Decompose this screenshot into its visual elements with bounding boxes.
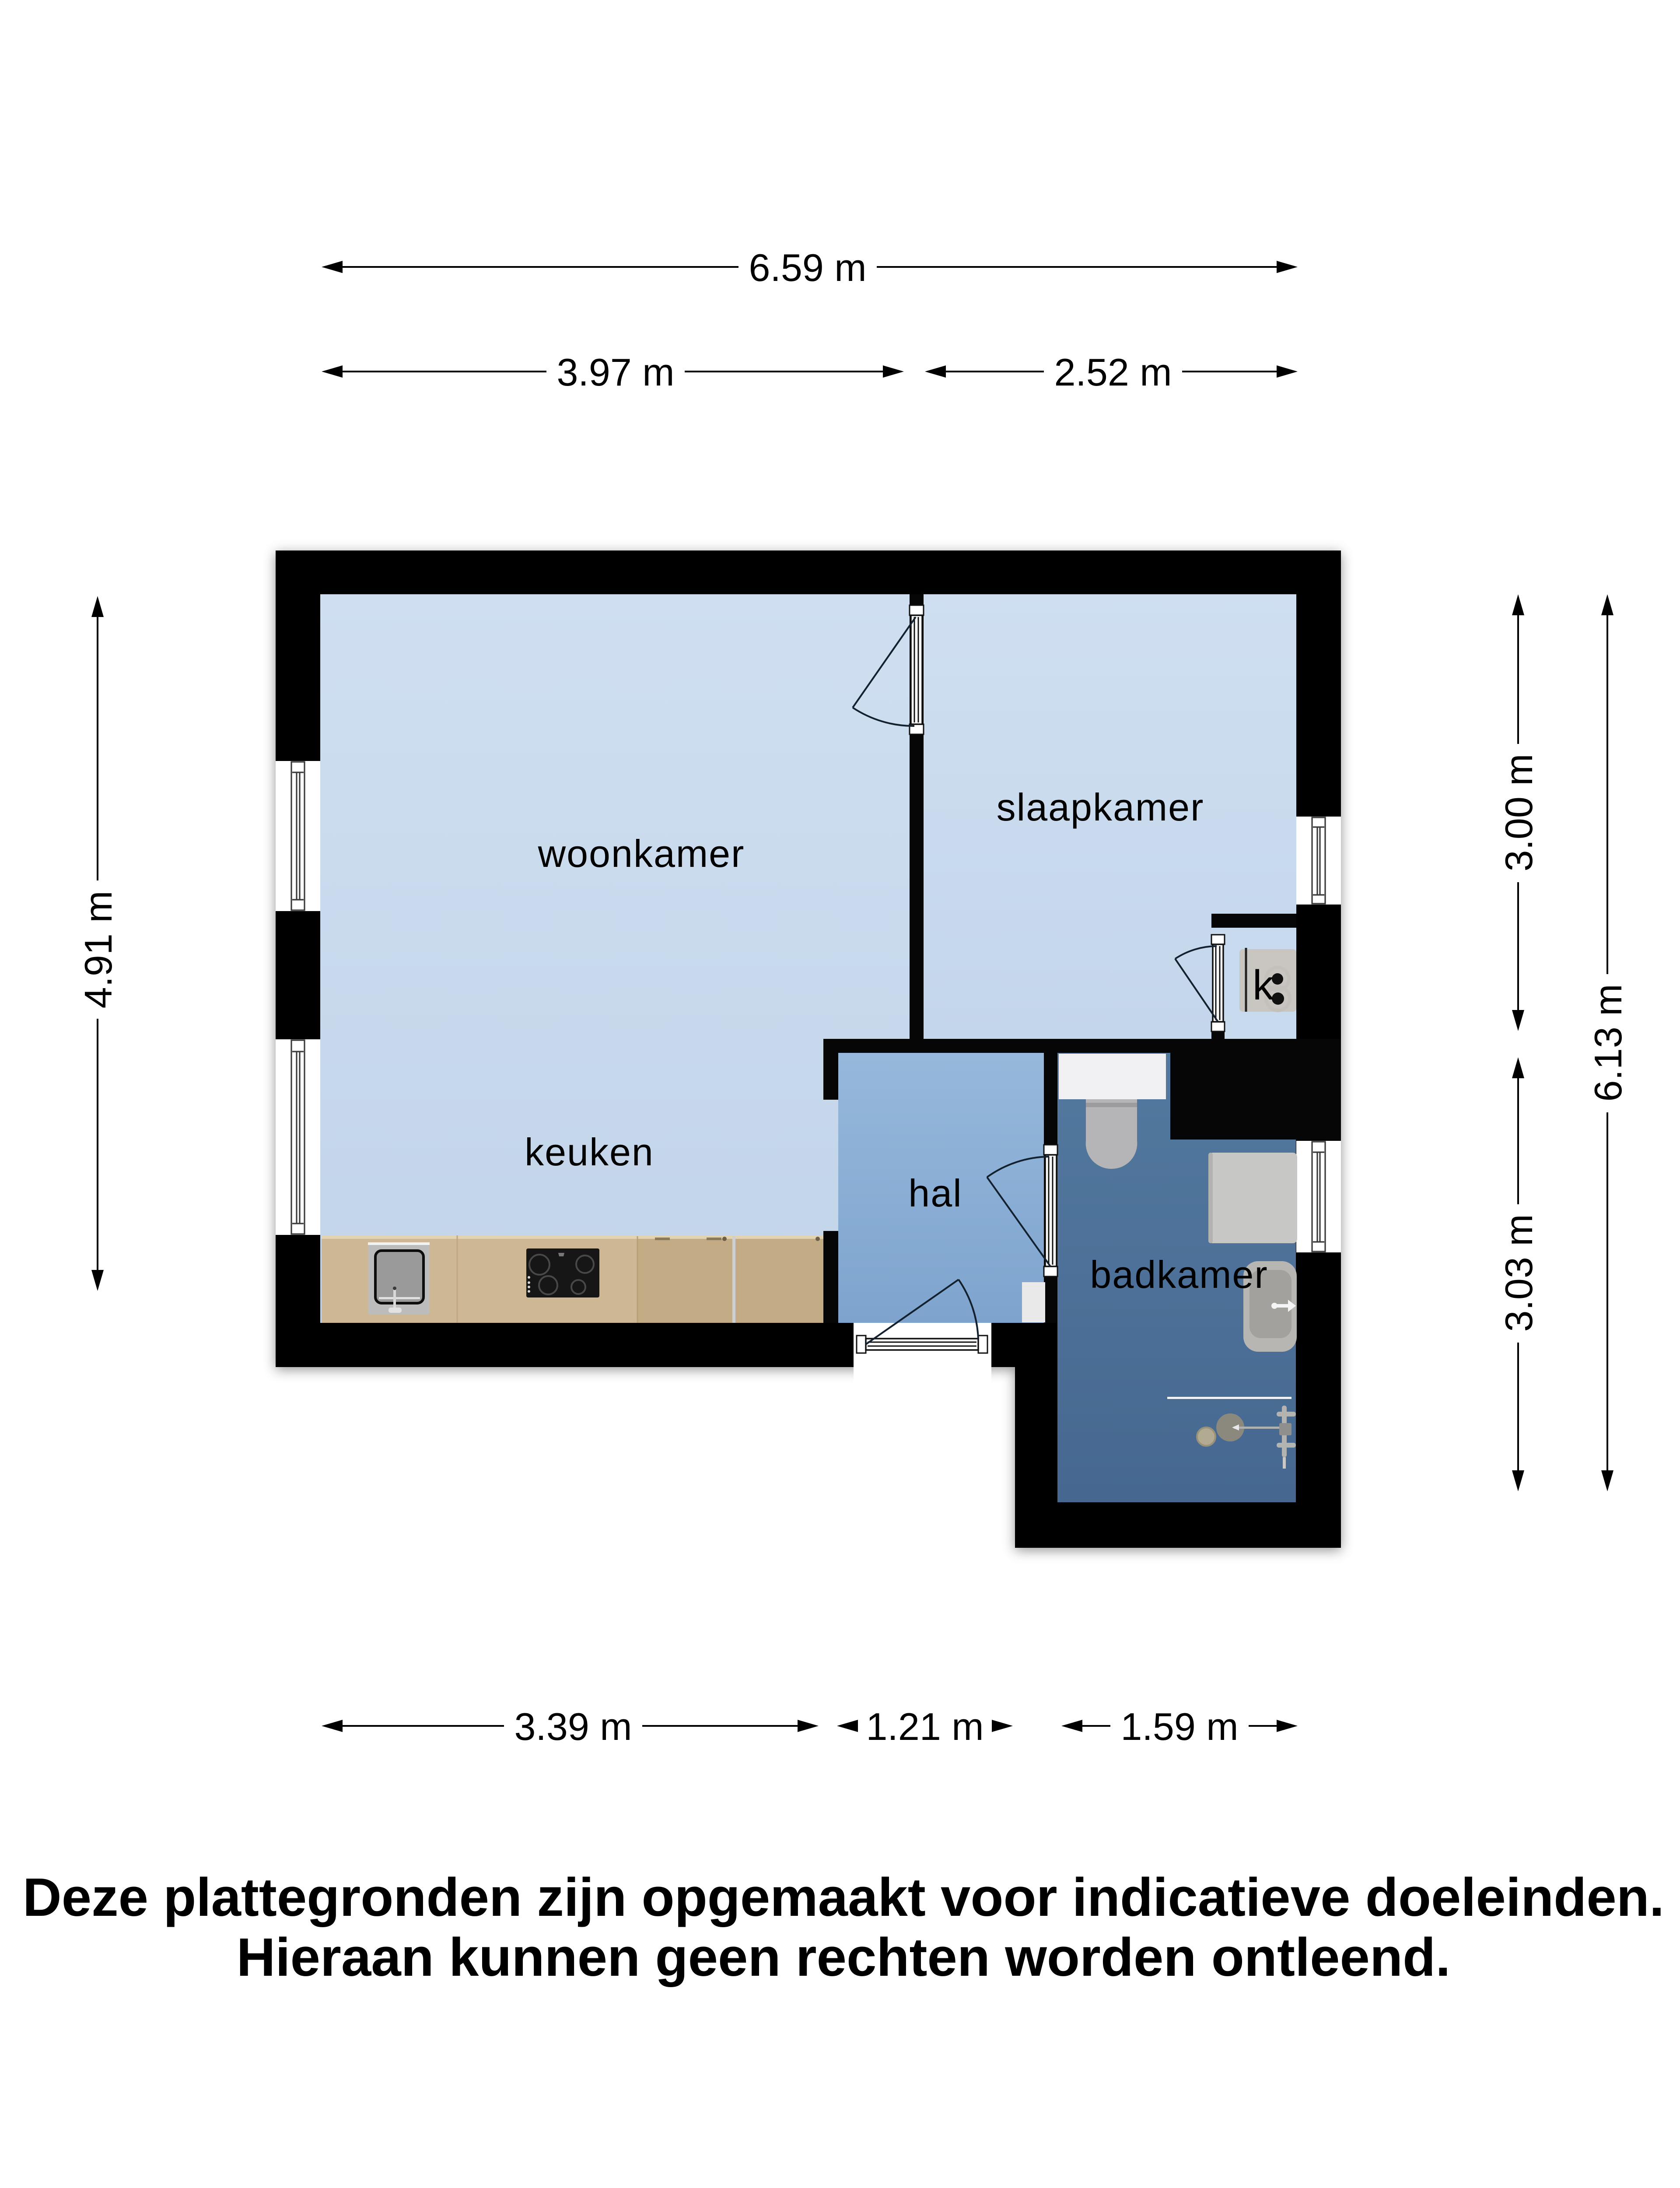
svg-text:hal: hal <box>908 1171 962 1215</box>
svg-text:k: k <box>1253 962 1274 1009</box>
svg-text:keuken: keuken <box>525 1130 654 1174</box>
svg-text:4.91 m: 4.91 m <box>77 891 120 1008</box>
svg-text:badkamer: badkamer <box>1090 1253 1268 1296</box>
svg-text:1.59 m: 1.59 m <box>1120 1705 1238 1748</box>
svg-text:3.39 m: 3.39 m <box>514 1705 632 1748</box>
svg-text:3.00 m: 3.00 m <box>1497 754 1540 871</box>
svg-text:3.03 m: 3.03 m <box>1497 1214 1540 1332</box>
svg-text:Deze plattegronden zijn opgema: Deze plattegronden zijn opgemaakt voor i… <box>23 1868 1664 1928</box>
svg-text:6.59 m: 6.59 m <box>749 246 866 289</box>
svg-text:2.52 m: 2.52 m <box>1054 351 1172 394</box>
svg-text:6.13 m: 6.13 m <box>1586 984 1630 1101</box>
svg-text:Hieraan kunnen geen rechten wo: Hieraan kunnen geen rechten worden ontle… <box>237 1928 1451 1988</box>
svg-text:1.21 m: 1.21 m <box>866 1705 983 1748</box>
svg-text:3.97 m: 3.97 m <box>556 351 674 394</box>
svg-text:slaapkamer: slaapkamer <box>997 785 1204 829</box>
svg-text:woonkamer: woonkamer <box>538 832 745 875</box>
